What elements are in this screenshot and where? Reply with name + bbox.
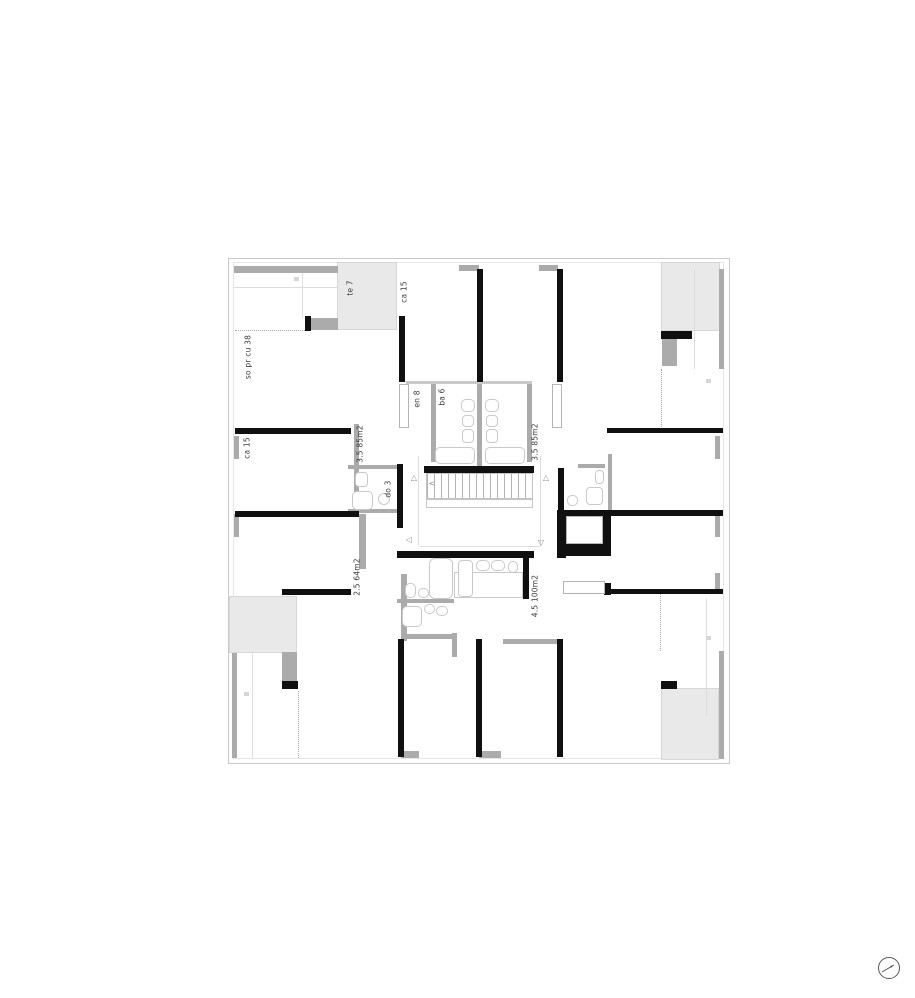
wall (477, 269, 483, 382)
room-label-so-pr-cu: so pr cu 38 (244, 335, 253, 379)
wall (399, 316, 405, 382)
closet (552, 384, 562, 428)
partition (479, 751, 501, 758)
partition (232, 653, 237, 758)
shower-fixture (586, 487, 603, 505)
thin-line (234, 287, 337, 288)
burner-fixture (491, 560, 505, 571)
apartment-label-25: 2.5 64m2 (353, 558, 362, 596)
stair-direction-marker: < (429, 480, 436, 488)
shower-fixture (352, 491, 373, 510)
apartment-label-35-left: 3.5 85m2 (356, 425, 365, 463)
wall (476, 639, 482, 757)
thin-line (706, 599, 707, 716)
wall (557, 544, 611, 556)
partition (608, 454, 612, 514)
partition (477, 382, 482, 466)
wall (523, 558, 529, 599)
wall (558, 468, 564, 512)
partition (539, 265, 558, 271)
partition (459, 265, 479, 271)
appliance-fixture (458, 560, 473, 597)
thin-line (694, 269, 695, 369)
toilet-fixture (355, 472, 368, 487)
wall (305, 316, 311, 331)
wall (282, 589, 351, 595)
terrace-block (661, 262, 720, 331)
toilet-fixture (462, 415, 474, 427)
wall (282, 681, 298, 689)
bathtub-fixture (485, 447, 525, 464)
sink-fixture (508, 561, 518, 573)
door-marker-up-right: △ (543, 474, 549, 482)
toilet-fixture (486, 415, 498, 427)
toilet-fixture (436, 606, 448, 616)
bathtub-fixture (435, 447, 475, 464)
thin-line (418, 456, 419, 546)
wall (604, 583, 611, 595)
partition (578, 464, 605, 468)
wall (398, 639, 404, 757)
partition (311, 318, 338, 330)
balcony-block (661, 688, 719, 760)
wall (661, 681, 677, 689)
partition (452, 633, 457, 657)
partition (406, 381, 532, 384)
thin-line (540, 456, 541, 546)
toilet-fixture (486, 429, 498, 443)
floor-plan-page: < △ △ ◁ ▽ (0, 0, 915, 998)
bathtub-fixture (429, 558, 453, 599)
toilet-fixture (595, 470, 604, 484)
dotted-line (661, 369, 662, 429)
partition (503, 639, 558, 644)
sink-fixture (567, 495, 578, 506)
terrace-block (337, 262, 397, 330)
sink-fixture (461, 399, 475, 412)
partition (348, 465, 398, 469)
wall (557, 639, 563, 757)
wall (235, 511, 359, 517)
partition (401, 634, 456, 639)
tiny-marker (706, 636, 711, 640)
sink-fixture (418, 588, 429, 598)
door-marker-down: ▽ (538, 539, 544, 547)
room-label-do3: do 3 (384, 480, 393, 497)
door-marker-up-left: △ (411, 474, 417, 482)
stair-landing (426, 499, 533, 508)
pillar (234, 436, 239, 459)
stair-treads (426, 473, 533, 499)
dotted-line (235, 330, 305, 331)
wall (397, 464, 403, 528)
pillar (715, 436, 720, 459)
balcony-block (229, 596, 297, 653)
wall (607, 428, 723, 433)
room-label-terrace: te 7 (346, 280, 355, 296)
floor-plan: < △ △ ◁ ▽ (228, 258, 730, 764)
apartment-label-35-right: 3.5 85m2 (531, 423, 540, 461)
tiny-marker (706, 379, 711, 383)
room-label-ca15-top: ca 15 (400, 281, 409, 303)
toilet-fixture (424, 604, 435, 614)
wall (235, 428, 351, 434)
partition (719, 269, 724, 369)
apartment-label-45: 4.5 100m2 (531, 575, 540, 618)
partition (719, 651, 724, 759)
wall (603, 516, 611, 546)
sink-fixture (405, 583, 416, 598)
pillar (282, 652, 297, 681)
sink-fixture (485, 399, 499, 412)
wall (424, 466, 534, 473)
wall (397, 551, 534, 558)
dotted-line (660, 594, 661, 651)
room-label-ca15-left: ca 15 (243, 437, 252, 459)
wall (607, 589, 723, 594)
partition (397, 599, 454, 603)
wall (661, 331, 692, 339)
toilet-fixture (462, 429, 474, 443)
room-label-ba6: ba 6 (438, 388, 447, 405)
north-arrow-icon (877, 956, 901, 980)
thin-line (302, 272, 303, 318)
tiny-marker (244, 692, 249, 696)
shower-fixture (402, 606, 422, 627)
room-label-en8: en 8 (413, 390, 422, 407)
pillar (662, 339, 677, 366)
tiny-marker (294, 277, 299, 281)
thin-line (252, 653, 253, 758)
dotted-line (298, 691, 299, 758)
closet (399, 384, 409, 428)
door-marker-left: ◁ (406, 536, 412, 544)
burner-fixture (476, 560, 490, 571)
thin-line (420, 546, 540, 547)
partition (234, 266, 338, 273)
elevator-cab (566, 516, 603, 544)
wardrobe (563, 581, 605, 594)
wall (557, 269, 563, 382)
pillar (715, 514, 720, 537)
pillar (234, 514, 239, 537)
